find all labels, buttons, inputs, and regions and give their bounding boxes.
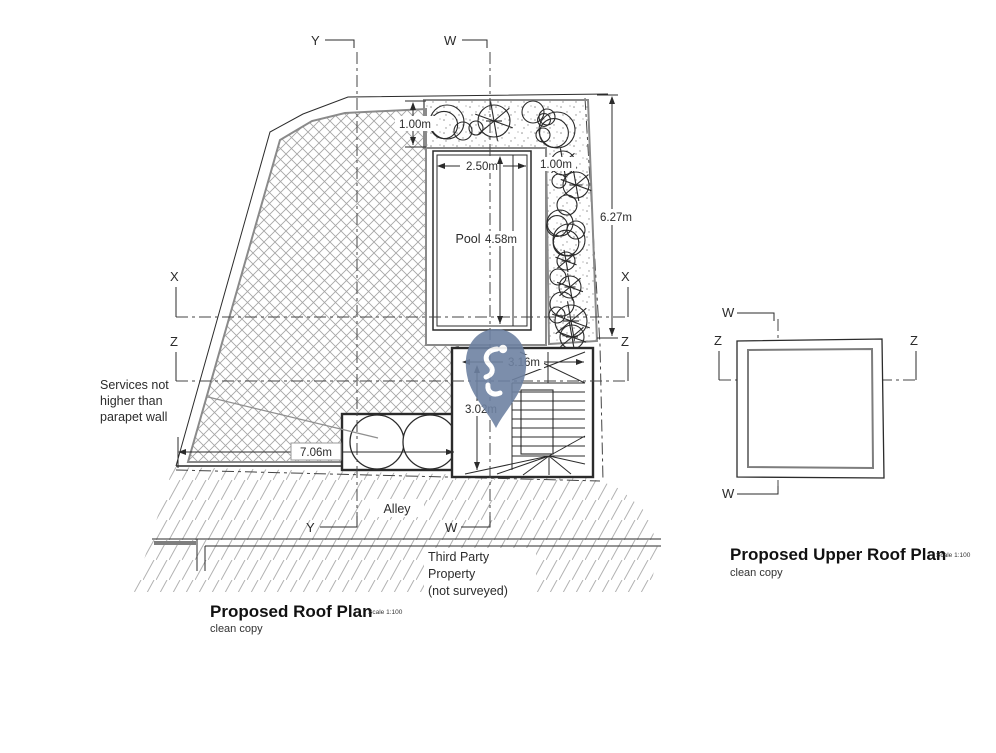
section-marker-x-right: X xyxy=(621,269,630,317)
dim-garden-right-length: 6.27m xyxy=(594,95,637,338)
section-letter-x: X xyxy=(170,269,179,284)
section-letter-y: Y xyxy=(311,33,320,48)
dim-planter-depth-right: 1.00m xyxy=(536,157,576,171)
section-letter-z: Z xyxy=(621,334,629,349)
upper-roof-outer xyxy=(737,339,884,478)
upper-title-block: Proposed Upper Roof Plan Scale 1:100 cle… xyxy=(730,545,971,579)
section-marker-z-right: Z xyxy=(621,334,629,381)
architectural-drawing-sheet: Y W Y W X X Z Z 1.00m 2.50m xyxy=(0,0,996,753)
section-letter-w: W xyxy=(722,305,735,320)
pool-label: Pool xyxy=(455,232,480,246)
third-party-line3: (not surveyed) xyxy=(428,584,508,598)
section-letter-w: W xyxy=(445,520,458,535)
main-plan-scale: Scale 1:100 xyxy=(368,609,403,616)
water-tank-1 xyxy=(350,415,404,469)
dim-label: 1.00m xyxy=(540,159,572,171)
upper-plan-title: Proposed Upper Roof Plan xyxy=(730,545,946,564)
section-marker-z-left: Z xyxy=(170,334,178,381)
section-letter-w: W xyxy=(722,486,735,501)
third-party-line2: Property xyxy=(428,567,476,581)
section-marker-z-right: Z xyxy=(910,333,918,380)
terrace-crosshatch xyxy=(188,109,458,462)
section-marker-w-bottom: W xyxy=(722,486,778,501)
dim-label: 6.27m xyxy=(600,212,632,224)
section-letter-w: W xyxy=(444,33,457,48)
dim-label: 2.50m xyxy=(466,161,498,173)
services-note-line3: parapet wall xyxy=(100,410,167,424)
roof-plan-drawing: Y W Y W X X Z Z 1.00m 2.50m xyxy=(0,0,996,753)
section-marker-w-top: W xyxy=(722,305,774,321)
section-letter-z: Z xyxy=(170,334,178,349)
main-plan-subtitle: clean copy xyxy=(210,623,263,635)
section-marker-y-top: Y xyxy=(311,33,354,48)
water-tank-2 xyxy=(403,415,457,469)
alley-hatch-area xyxy=(134,467,661,592)
services-note-line2: higher than xyxy=(100,394,163,408)
section-letter-z: Z xyxy=(910,333,918,348)
pin-glyph-dot xyxy=(499,345,507,353)
dim-label: 1.00m xyxy=(399,119,431,131)
dim-label: 4.58m xyxy=(485,234,517,246)
main-title-block: Proposed Roof Plan Scale 1:100 clean cop… xyxy=(210,602,403,635)
section-marker-x-left: X xyxy=(170,269,179,317)
services-note-line1: Services not xyxy=(100,378,169,392)
section-marker-z-left: Z xyxy=(714,333,722,380)
section-letter-x: X xyxy=(621,269,630,284)
dim-label: 7.06m xyxy=(300,447,332,459)
section-letter-z: Z xyxy=(714,333,722,348)
alley-label: Alley xyxy=(370,499,424,517)
third-party-label: Third Party Property (not surveyed) xyxy=(424,548,536,599)
tank-room xyxy=(342,414,458,470)
third-party-line1: Third Party xyxy=(428,550,490,564)
section-marker-w-top: W xyxy=(444,33,487,48)
section-letter-y: Y xyxy=(306,520,315,535)
upper-plan-subtitle: clean copy xyxy=(730,567,783,579)
svg-text:Alley: Alley xyxy=(383,502,411,516)
upper-roof-plan: W W Z Z Proposed Upper Roof Plan Scale 1… xyxy=(714,305,971,579)
upper-plan-scale: Scale 1:100 xyxy=(936,552,971,559)
main-plan-title: Proposed Roof Plan xyxy=(210,602,372,621)
